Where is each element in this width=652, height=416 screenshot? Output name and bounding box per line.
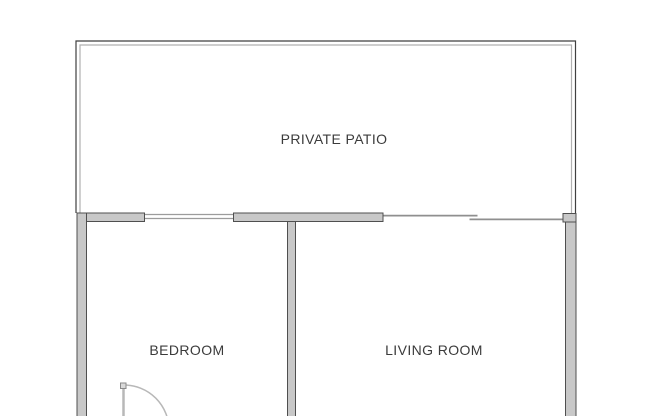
private-patio-label: PRIVATE PATIO <box>281 131 388 147</box>
floor-plan-page: PRIVATE PATIO BEDROOM LIVING ROOM <box>0 0 652 416</box>
patio-wall-inner-line <box>80 45 572 214</box>
top-wall-right-block <box>563 214 576 223</box>
top-wall-left-segment <box>77 213 145 222</box>
living-room-label: LIVING ROOM <box>385 342 483 358</box>
bedroom-door <box>121 383 170 416</box>
room-labels: PRIVATE PATIO BEDROOM LIVING ROOM <box>149 131 482 358</box>
bedroom-living-partition-wall <box>288 222 296 416</box>
patio-perimeter-wall <box>76 41 576 214</box>
floor-plan-canvas: PRIVATE PATIO BEDROOM LIVING ROOM <box>0 0 652 416</box>
patio-wall-outer-line <box>76 41 576 214</box>
door-hinge-cap <box>121 383 127 389</box>
right-exterior-wall <box>566 222 577 416</box>
window <box>145 215 234 219</box>
top-wall-middle-segment <box>234 213 384 222</box>
left-exterior-wall <box>77 213 87 416</box>
bedroom-label: BEDROOM <box>149 342 224 358</box>
sliding-door <box>383 216 565 220</box>
exterior-walls <box>77 213 576 416</box>
door-swing-arc <box>124 385 169 416</box>
